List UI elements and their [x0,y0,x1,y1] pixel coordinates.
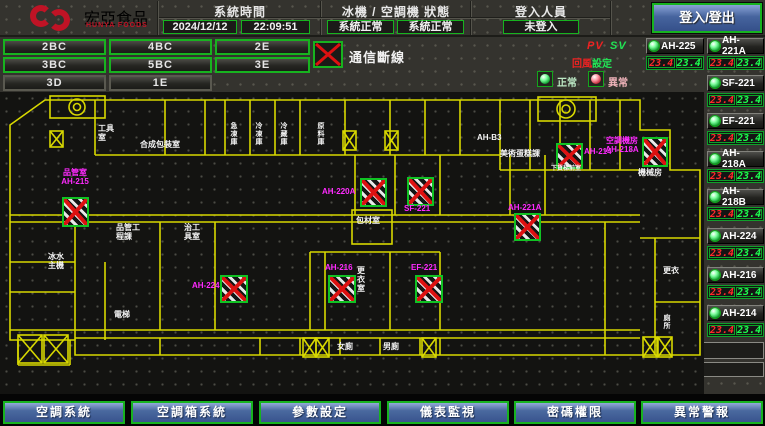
room-label-qc: 品管工程課 [116,223,146,241]
sv-value: 23.4 [736,58,762,68]
unit-button-ah-225[interactable]: AH-225 [646,38,704,54]
unit-button-ah-216[interactable]: AH-216 [707,267,764,283]
room-label-cold2: 冷凍庫 [254,122,263,154]
comm-fail-indicator-ef-221[interactable] [415,275,443,303]
unit-label: AH-224 [722,231,756,242]
pv-value: 23.4 [709,248,735,258]
unit-label: AH-218B [722,186,761,208]
unit-button-ah-218a[interactable]: AH-218A [707,151,764,167]
pv-header: PV [587,40,604,52]
unit-tag-ah-220a: AH-220A [322,187,355,196]
comm-fail-indicator-ah-218a[interactable] [642,137,668,167]
top-bar: 宏亞食品 HUNYA FOODS 系統時間 2024/12/12 22:09:5… [0,0,765,37]
footer-button-meter-monitor[interactable]: 儀表監視 [387,401,509,424]
floor-button-2bc[interactable]: 2BC [3,39,106,55]
unit-button-ah-214[interactable]: AH-214 [707,305,764,321]
empty-slot-2 [701,362,764,377]
sv-value: 23.4 [736,325,762,335]
setting-header: 回風設定 [572,55,612,70]
unit-label: AH-221A [722,35,761,57]
floor-button-4bc[interactable]: 4BC [109,39,212,55]
pv-value: 23.4 [709,171,735,181]
status-led-icon [649,41,659,51]
unit-tag-ah-221a: AH-221A [508,203,541,212]
unit-label: AH-225 [661,41,695,52]
unit-values-ah-221a: 23.423.4 [707,56,764,70]
pv-value: 23.4 [709,133,735,143]
floor-button-5bc[interactable]: 5BC [109,57,212,73]
room-label-wc2: 廁所 [662,314,671,340]
comm-fail-indicator-ah-221a[interactable] [514,213,541,241]
footer-button-parameters[interactable]: 參數設定 [259,401,381,424]
status-led-icon [710,308,720,318]
unit-label: EF-221 [722,116,755,127]
company-logo-subtitle: HUNYA FOODS [86,22,148,29]
floor-button-1e[interactable]: 1E [109,75,212,91]
abnormal-legend-label: 異常 [608,74,628,89]
unit-values-ah-225: 23.423.4 [646,56,704,70]
unit-values-ah-224: 23.423.4 [707,246,764,260]
floor-button-2e[interactable]: 2E [215,39,310,55]
comm-fail-indicator-ah-220a[interactable] [360,178,387,207]
room-label-mech: 機械房 [638,168,664,177]
footer-button-ahu-system[interactable]: 空調箱系統 [131,401,253,424]
footer-button-password-auth[interactable]: 密碼權限 [514,401,636,424]
unit-label: AH-218A [722,148,761,170]
sv-value: 23.4 [736,287,762,297]
comm-fail-indicator-ah-215[interactable] [62,197,89,227]
sv-value: 23.4 [736,171,762,181]
empty-slot-1 [701,342,764,359]
room-label-chiller: 冰水主機 [48,252,68,270]
system-time-label: 系統時間 [160,3,320,20]
status-led-icon [710,41,720,51]
room-label-cold1: 急凍庫 [229,122,238,154]
comm-fail-indicator-ah-216[interactable] [328,275,356,303]
sv-value: 23.4 [736,95,762,105]
pv-value: 23.4 [709,58,735,68]
unit-tag-ah-215: 品管室AH-215 [50,168,100,186]
pv-value: 23.4 [648,58,675,68]
floor-button-3e[interactable]: 3E [215,57,310,73]
pv-value: 23.4 [709,95,735,105]
status-led-icon [710,116,720,126]
unit-values-ah-218a: 23.423.4 [707,169,764,183]
room-label-locker: 更衣室 [357,266,371,293]
hmi-screen: { "header": { "logo_title": "宏亞食品", "log… [0,0,765,426]
unit-values-sf-221: 23.423.4 [707,93,764,107]
setting-header-pv: 回風 [572,59,592,70]
unit-values-ah-216: 23.423.4 [707,285,764,299]
unit-button-ah-221a[interactable]: AH-221A [707,38,764,54]
floor-button-3bc[interactable]: 3BC [3,57,106,73]
chiller-status-value: 系統正常 [327,20,394,34]
unit-button-ah-218b[interactable]: AH-218B [707,189,764,205]
room-label-wc-male: 男廁 [383,342,399,351]
status-led-icon [710,231,720,241]
room-label-wc-female: 女廁 [337,342,353,351]
pv-value: 23.4 [709,209,735,219]
unit-tag-ef-221: EF-221 [411,263,437,272]
ahu-status-value: 系統正常 [397,20,464,34]
unit-button-sf-221[interactable]: SF-221 [707,75,764,91]
unit-tag-ah-224: AH-224 [192,281,220,290]
abnormal-led-icon [588,71,604,87]
pv-value: 23.4 [709,287,735,297]
unit-values-ef-221: 23.423.4 [707,131,764,145]
sv-value: 23.4 [736,133,762,143]
floor-plan: 品管室AH-215 AH-220A SF-221 AH-221A AH-214 … [0,92,704,394]
sv-value: 23.4 [736,248,762,258]
unit-values-ah-214: 23.423.4 [707,323,764,337]
unit-button-ah-224[interactable]: AH-224 [707,228,764,244]
machine-status-label: 冰機 / 空調機 狀態 [322,3,470,20]
normal-led-icon [537,71,553,87]
unit-button-ef-221[interactable]: EF-221 [707,113,764,129]
sv-header: SV [610,40,627,52]
status-led-icon [710,270,720,280]
comm-fail-legend-label: 通信斷線 [349,47,405,66]
footer-button-hvac-system[interactable]: 空調系統 [3,401,125,424]
room-label-locker2: 更衣 [663,266,681,275]
unit-label: AH-216 [722,270,756,281]
unit-values-ah-218b: 23.423.4 [707,207,764,221]
normal-legend-label: 正常 [557,74,577,89]
floor-button-3d[interactable]: 3D [3,75,106,91]
room-label-tool: 工具室 [98,124,118,142]
room-label-cold3: 冷藏庫 [279,122,288,154]
room-label-ah-b3: AH-B3 [477,133,501,142]
login-status-value: 未登入 [503,20,579,34]
system-time-value: 22:09:51 [241,20,310,34]
unit-tag-sf-221: SF-221 [404,204,430,213]
company-logo-icon [28,3,78,33]
system-date-value: 2024/12/12 [163,20,237,34]
room-label-lift: 電梯 [114,310,134,319]
sv-value: 23.4 [676,58,703,68]
status-led-icon [710,154,720,164]
unit-tag-ah-216: AH-216 [325,263,353,272]
room-label-jig: 治工具室 [184,223,204,241]
login-logout-button[interactable]: 登入/登出 [652,3,762,33]
room-label-freight: 下貨梯前室 [551,165,581,174]
unit-tag-ah-218a: 空調機房AH-218A [602,136,642,154]
comm-fail-legend-icon [313,41,343,68]
unit-label: SF-221 [722,78,755,89]
footer-button-alarm[interactable]: 異常警報 [641,401,763,424]
unit-label: AH-214 [722,308,756,319]
status-led-icon [710,78,720,88]
comm-fail-indicator-ah-224[interactable] [220,275,248,303]
room-label-art: 美術蛋糕課 [500,149,540,158]
room-label-prep: 合成包裝室 [140,140,180,149]
login-user-label: 登入人員 [472,3,610,20]
pv-value: 23.4 [709,325,735,335]
room-label-cold4: 原料庫 [316,122,325,154]
status-led-icon [710,192,720,202]
setting-header-sv: 設定 [592,59,612,70]
comm-fail-indicator-sf-221[interactable] [407,177,434,206]
sv-value: 23.4 [736,209,762,219]
room-label-packmat: 包材室 [356,216,384,225]
